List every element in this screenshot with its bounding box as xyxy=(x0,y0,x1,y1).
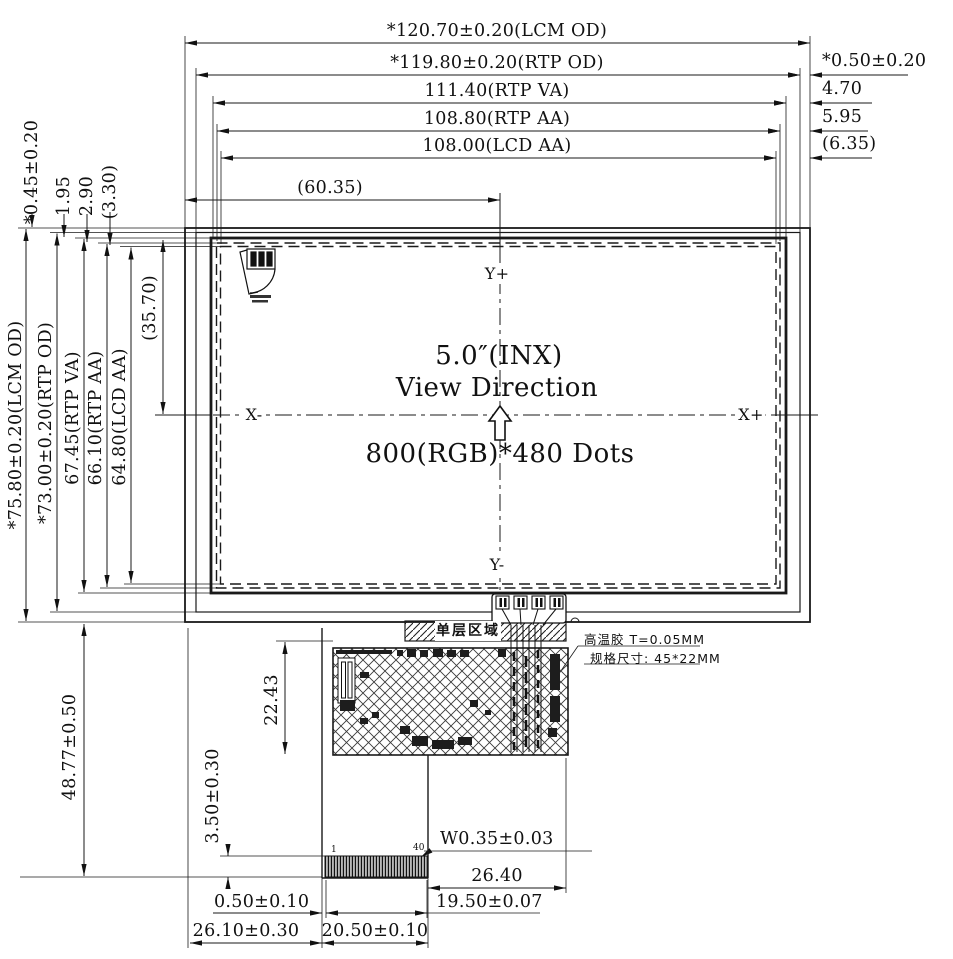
axis-x-pos-label: X+ xyxy=(736,405,765,425)
dim-rtp-aa-width: 108.80(RTP AA) xyxy=(424,109,570,129)
fpc-components xyxy=(338,658,355,703)
callout-tape-size: 规格尺寸: 45*22MM xyxy=(590,649,721,669)
dim-right-gap-lcd: (6.35) xyxy=(822,134,876,154)
dim-lcm-od-width: *120.70±0.20(LCM OD) xyxy=(387,21,607,41)
axis-y-pos-label: Y+ xyxy=(483,264,512,284)
dim-top-gap-rtp: *0.45±0.20 xyxy=(22,120,42,224)
lcd-dimension-drawing: *120.70±0.20(LCM OD) *119.80±0.20(RTP OD… xyxy=(0,0,953,959)
panel-size-text: 5.0″(INX) xyxy=(435,346,562,366)
dim-fpc-drop: 48.77±0.50 xyxy=(60,694,80,801)
dim-half-width: (60.35) xyxy=(297,178,363,198)
axis-y-neg-label: Y- xyxy=(488,555,507,575)
dim-lcm-od-height: *75.80±0.20(LCM OD) xyxy=(6,321,26,530)
dim-lcd-aa-width: 108.00(LCD AA) xyxy=(423,136,572,156)
dim-right-gap-va: 4.70 xyxy=(822,79,862,99)
dim-right-gap-rtp: *0.50±0.20 xyxy=(822,51,926,71)
dim-finger-strip-width: 19.50±0.07 xyxy=(436,892,543,912)
tape-area xyxy=(333,648,568,755)
single-layer-band-label: 单层区域 xyxy=(435,621,501,641)
fpc-connector-block xyxy=(492,594,566,625)
pin-1-label: 1 xyxy=(331,840,337,860)
dim-finger-margin: 0.50±0.10 xyxy=(214,892,309,912)
dim-half-height: (35.70) xyxy=(140,275,160,341)
dim-rtp-va-height: 67.45(RTP VA) xyxy=(63,351,83,485)
dim-tail-width: 20.50±0.10 xyxy=(322,921,429,941)
dim-finger-width: W0.35±0.03 xyxy=(440,829,554,849)
dim-right-gap-aa: 5.95 xyxy=(822,107,862,127)
dim-tail-to-body: 26.40 xyxy=(471,866,523,886)
view-direction-text: View Direction xyxy=(396,378,598,398)
dim-rtp-od-height: *73.00±0.20(RTP OD) xyxy=(36,322,56,524)
dim-top-gap-va: 1.95 xyxy=(54,176,74,216)
dim-finger-exposed: 3.50±0.30 xyxy=(203,748,223,843)
view-direction-arrow-icon xyxy=(489,406,511,440)
dim-tape-height: 22.43 xyxy=(262,674,282,726)
pin-40-label: 40 xyxy=(413,838,424,858)
dim-tail-offset: 26.10±0.30 xyxy=(193,921,300,941)
resolution-text: 800(RGB)*480 Dots xyxy=(365,444,634,464)
dim-top-gap-lcd: (3.30) xyxy=(100,165,120,219)
gold-finger-strip xyxy=(325,856,427,877)
dim-top-gap-aa: 2.90 xyxy=(77,176,97,216)
callout-tape-spec: 高温胶 T=0.05MM xyxy=(584,630,705,650)
dim-rtp-va-width: 111.40(RTP VA) xyxy=(424,81,569,101)
dim-rtp-aa-height: 66.10(RTP AA) xyxy=(86,351,106,486)
axis-x-neg-label: X- xyxy=(244,405,265,425)
dim-lcd-aa-height: 64.80(LCD AA) xyxy=(110,348,130,486)
alignment-mark-icon xyxy=(240,249,275,303)
dim-rtp-od-width: *119.80±0.20(RTP OD) xyxy=(390,53,604,73)
extension-lines xyxy=(18,36,810,948)
